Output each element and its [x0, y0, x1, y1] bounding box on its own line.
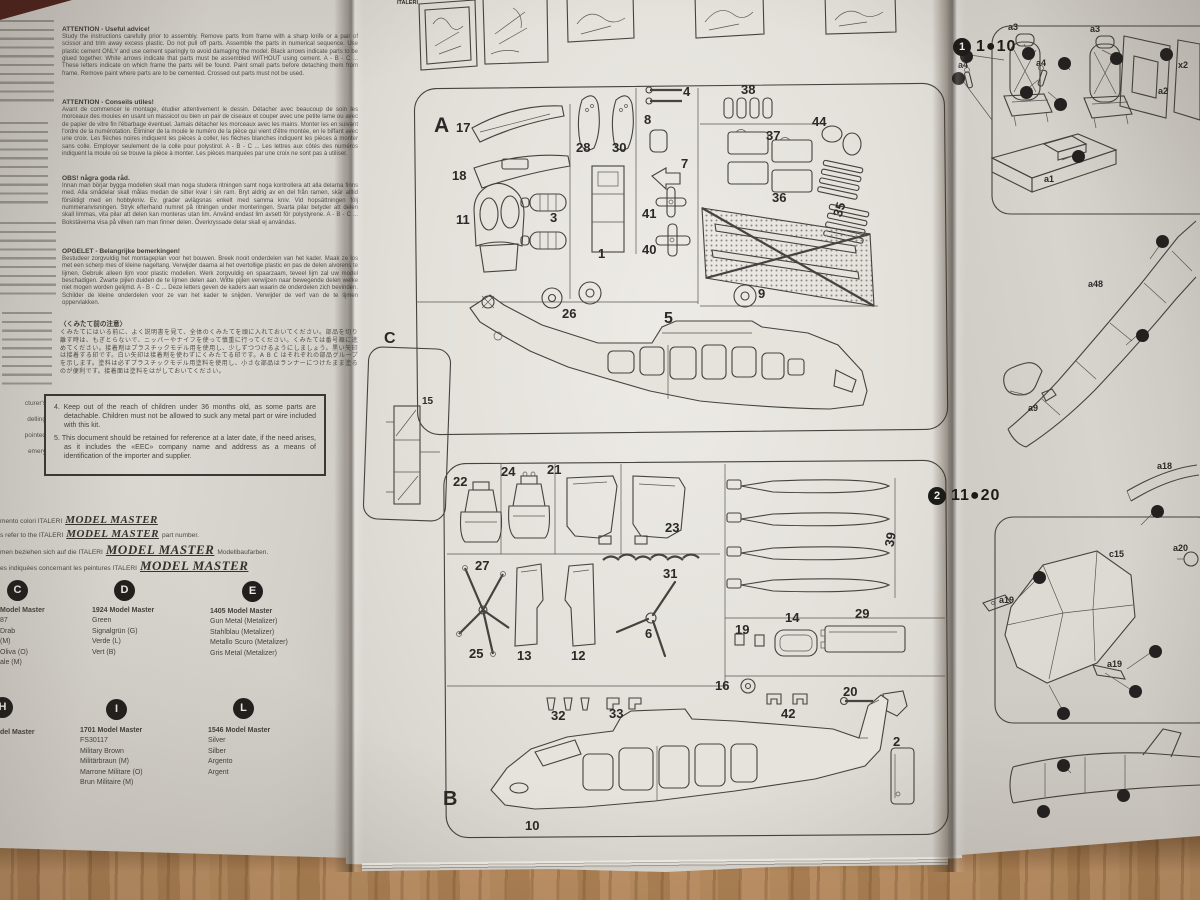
paint-line: Verde (L)	[92, 637, 154, 647]
paint-callout-dot	[1022, 47, 1035, 60]
safety-warning-box: 4. Keep out of the reach of children und…	[44, 394, 326, 476]
part-number-label: 28	[576, 140, 590, 155]
paint-callout-dot	[1136, 329, 1149, 342]
paint-callout-dot	[1057, 707, 1070, 720]
paint-ref-text: s refer to the ITALERI	[0, 532, 63, 539]
sprue-b-diagram: 2224212327251312316391429191642203233210…	[435, 448, 960, 848]
part-number-label: 29	[855, 606, 869, 621]
model-master-logo: MODEL MASTER	[66, 528, 159, 540]
part-number-label: 22	[453, 474, 467, 489]
paragraph-heading: ATTENTION - Useful advice!	[62, 26, 358, 33]
part-number-label: 26	[562, 306, 576, 321]
paragraph-english: ATTENTION - Useful advice! Study the ins…	[62, 26, 358, 78]
paragraph-body: Bestudeer zorgvuldig het montageplan voo…	[62, 256, 358, 307]
paragraph-japanese: 〈くみたて前の注意〉 くみたてにはいる前に、よく説明書を見て、全体のくみたてを頭…	[60, 318, 358, 376]
step-1-header: 1 1●10	[953, 38, 1016, 56]
paint-callout-dot	[1057, 759, 1070, 772]
paint-color-list: del Master	[0, 728, 35, 738]
part-number-label: 14	[785, 610, 799, 625]
part-number-label: a2	[1158, 86, 1168, 96]
paint-line: Vert (B)	[92, 648, 154, 658]
model-master-logo: MODEL MASTER	[106, 542, 214, 557]
paint-ref-text: es indiquées concernant les peintures IT…	[0, 565, 137, 572]
part-number-label: a9	[1028, 403, 1038, 413]
paint-callout-dot	[1149, 645, 1162, 658]
paint-line: Brun Militaire (M)	[80, 778, 143, 788]
part-number-label: 7	[681, 156, 688, 171]
part-number-label: a19	[999, 595, 1014, 605]
paint-ref-text: mento colori ITALERI	[0, 518, 62, 525]
paint-line: Stahlblau (Metalizer)	[210, 628, 288, 638]
part-number-label: 9	[758, 286, 765, 301]
part-number-label: 25	[469, 646, 483, 661]
assembly-step-1-diagram: a3a3a4a4a2x2a1	[952, 0, 1200, 222]
paint-letter-badge: I	[106, 699, 127, 720]
paint-callout-dot	[1110, 52, 1123, 65]
sprue-b-drawing	[435, 448, 960, 848]
paragraph-heading: 〈くみたて前の注意〉	[60, 318, 358, 328]
paint-line: 1701 Model Master	[80, 726, 143, 736]
fuselage-assembly-diagram: a48a9	[990, 215, 1200, 460]
part-number-label: 17	[456, 120, 470, 135]
paint-ref-text: men beziehen sich auf die ITALERI	[0, 549, 103, 556]
part-number-label: 16	[715, 678, 729, 693]
paragraph-body: くみたてにはいる前に、よく説明書を見て、全体のくみたてを頭に入れておいてください…	[60, 329, 358, 376]
part-number-label: 31	[663, 566, 677, 581]
paint-ref-text: Modellbaufarben.	[217, 549, 268, 556]
paint-color-list: Model Master 87 Drab (M) Oliva (O) ale (…	[0, 606, 45, 668]
part-number-label: 41	[642, 206, 656, 221]
part-number-label: 36	[772, 190, 786, 205]
safety-item-4: 4. Keep out of the reach of children und…	[64, 403, 316, 430]
sprue-a-drawing	[400, 74, 960, 442]
paint-line: FS30117	[80, 736, 143, 746]
paint-callout-dot	[1033, 571, 1046, 584]
paragraph-heading: OBS! några goda råd.	[62, 175, 358, 182]
paint-line: Drab	[0, 627, 45, 637]
paragraph-french: ATTENTION - Conseils utiles! Avant de co…	[62, 99, 358, 158]
paint-callout-dot	[1117, 789, 1130, 802]
part-number-label: ITALERI	[397, 0, 418, 6]
part-number-label: 4	[683, 84, 690, 99]
paint-line: Gun Metal (Metalizer)	[210, 617, 288, 627]
paint-line: Military Brown	[80, 747, 143, 757]
paint-line: Argento	[208, 757, 270, 767]
paint-reference-line: men beziehen sich auf die ITALERIMODEL M…	[0, 542, 268, 558]
part-number-label: B	[443, 788, 457, 811]
part-number-label: a20	[1173, 543, 1188, 553]
sprue-a-diagram: A171811283031874140438373644359265	[400, 74, 960, 442]
part-number-label: A	[434, 114, 449, 138]
part-number-label: 1	[598, 246, 605, 261]
part-number-label: 2	[893, 734, 900, 749]
paragraph-heading: ATTENTION - Conseils utiles!	[62, 99, 358, 106]
part-number-label: a3	[1008, 22, 1018, 32]
paint-color-list: 1405 Model Master Gun Metal (Metalizer) …	[210, 607, 288, 659]
cutoff-text-column	[0, 20, 54, 108]
paragraph-swedish: OBS! några goda råd. Innan man börjar by…	[62, 175, 358, 227]
part-number-label: 3	[550, 210, 557, 225]
paint-callout-dot	[1072, 150, 1085, 163]
paint-line: 1405 Model Master	[210, 607, 288, 617]
paint-callout-dot	[1151, 505, 1164, 518]
part-number-label: C	[384, 330, 396, 348]
paint-line: Marrone Militare (O)	[80, 768, 143, 778]
part-number-label: c15	[1109, 549, 1124, 559]
part-number-label: a1	[1044, 174, 1054, 184]
paint-line: Silber	[208, 747, 270, 757]
paint-line: Oliva (O)	[0, 648, 45, 658]
part-number-label: 38	[741, 82, 755, 97]
part-number-label: 19	[735, 622, 749, 637]
paint-callout-dot	[1129, 685, 1142, 698]
bottom-fuselage-diagram	[1005, 725, 1200, 840]
paint-reference-line: es indiquées concernant les peintures IT…	[0, 558, 251, 574]
cutoff-text-column	[0, 222, 56, 298]
model-master-logo: MODEL MASTER	[140, 558, 248, 573]
paint-letter-badge: C	[7, 580, 28, 601]
part-number-label: 5	[664, 310, 673, 328]
margin-fragment: emery	[0, 448, 46, 455]
part-number-label: 30	[612, 140, 626, 155]
part-number-label: 40	[642, 242, 656, 257]
paint-color-list: 1701 Model Master FS30117 Military Brown…	[80, 726, 143, 788]
part-number-label: 32	[551, 708, 565, 723]
part-number-label: 21	[547, 462, 561, 477]
paint-callout-dot	[1058, 57, 1071, 70]
margin-fragment: cturer's	[0, 400, 46, 407]
part-number-label: 10	[525, 818, 539, 833]
part-number-label: 44	[812, 114, 826, 129]
part-number-label: 13	[517, 648, 531, 663]
margin-fragment: delling	[0, 416, 46, 423]
paragraph-body: Innan man börjar bygga modellen skall ma…	[62, 183, 358, 227]
part-number-label: 37	[766, 128, 780, 143]
safety-item-5: 5. This document should be retained for …	[64, 434, 316, 461]
paint-line: Silver	[208, 736, 270, 746]
paragraph-dutch: OPGELET - Belangrijke bemerkingen! Bestu…	[62, 248, 358, 307]
part-number-label: 12	[571, 648, 585, 663]
part-number-label: 23	[665, 520, 679, 535]
cutoff-text-column	[2, 312, 52, 390]
paint-callout-dot	[1054, 98, 1067, 111]
paint-color-list: 1546 Model Master Silver Silber Argento …	[208, 726, 270, 778]
part-number-label: 39	[882, 531, 899, 548]
paragraph-heading: OPGELET - Belangrijke bemerkingen!	[62, 248, 358, 255]
paint-line: ale (M)	[0, 658, 45, 668]
paint-color-list: 1924 Model Master Green Signalgrün (G) V…	[92, 606, 154, 658]
part-number-label: a18	[1157, 461, 1172, 471]
part-number-label: 18	[452, 168, 466, 183]
paint-reference-line: mento colori ITALERIMODEL MASTER	[0, 514, 161, 526]
step-2-header: 2 11●20	[928, 487, 1000, 505]
paint-ref-text: part number.	[162, 532, 199, 539]
paint-line: 1546 Model Master	[208, 726, 270, 736]
part-number-label: 24	[501, 464, 515, 479]
step-2-number-badge: 2	[928, 487, 946, 505]
part-number-label: 27	[475, 558, 489, 573]
part-number-label: a4	[1036, 58, 1046, 68]
fuselage-assembly-drawing	[990, 215, 1200, 460]
part-number-label: a3	[1090, 24, 1100, 34]
step-1-part-range: 1●10	[976, 38, 1016, 56]
part-number-label: 8	[644, 112, 651, 127]
part-number-label: 20	[843, 684, 857, 699]
paint-letter-badge: L	[233, 698, 254, 719]
paragraph-body: Avant de commencer le montage, étudier a…	[62, 107, 358, 158]
paint-letter-badge: D	[114, 580, 135, 601]
paint-line: Argent	[208, 768, 270, 778]
paint-callout-dot	[1160, 48, 1173, 61]
part-number-label: a48	[1088, 279, 1103, 289]
paint-line: Militärbraun (M)	[80, 757, 143, 767]
paint-callout-dot	[952, 72, 965, 85]
cutoff-text-column	[0, 122, 48, 208]
paint-line: Green	[92, 616, 154, 626]
step-1-number-badge: 1	[953, 38, 971, 56]
paint-line: Model Master	[0, 606, 45, 616]
paint-reference-line: s refer to the ITALERIMODEL MASTERpart n…	[0, 528, 199, 540]
paint-line: 87	[0, 616, 45, 626]
paint-callout-dot	[1156, 235, 1169, 248]
paint-line: Metallo Scuro (Metalizer)	[210, 638, 288, 648]
step-1-drawing	[952, 0, 1200, 222]
part-number-label: 6	[645, 626, 652, 641]
model-master-logo: MODEL MASTER	[65, 514, 158, 526]
paint-letter-badge: E	[242, 581, 263, 602]
paint-callout-dot	[1037, 805, 1050, 818]
margin-fragment: pointed	[0, 432, 46, 439]
part-number-label: 33	[609, 706, 623, 721]
paint-line: del Master	[0, 728, 35, 738]
part-number-label: 11	[456, 212, 470, 227]
bottom-fuselage-drawing	[1005, 725, 1200, 840]
part-number-label: 15	[422, 396, 433, 407]
paint-callout-dot	[1020, 86, 1033, 99]
part-number-label: a19	[1107, 659, 1122, 669]
paint-line: Gris Metal (Metalizer)	[210, 649, 288, 659]
part-number-label: x2	[1178, 60, 1188, 70]
step-2-part-range: 11●20	[951, 487, 1000, 505]
paint-line: 1924 Model Master	[92, 606, 154, 616]
paint-line: (M)	[0, 637, 45, 647]
part-number-label: 42	[781, 706, 795, 721]
paint-line: Signalgrün (G)	[92, 627, 154, 637]
paragraph-body: Study the instructions carefully prior t…	[62, 34, 358, 78]
photo-of-instruction-sheet: ATTENTION - Useful advice! Study the ins…	[0, 0, 1200, 900]
